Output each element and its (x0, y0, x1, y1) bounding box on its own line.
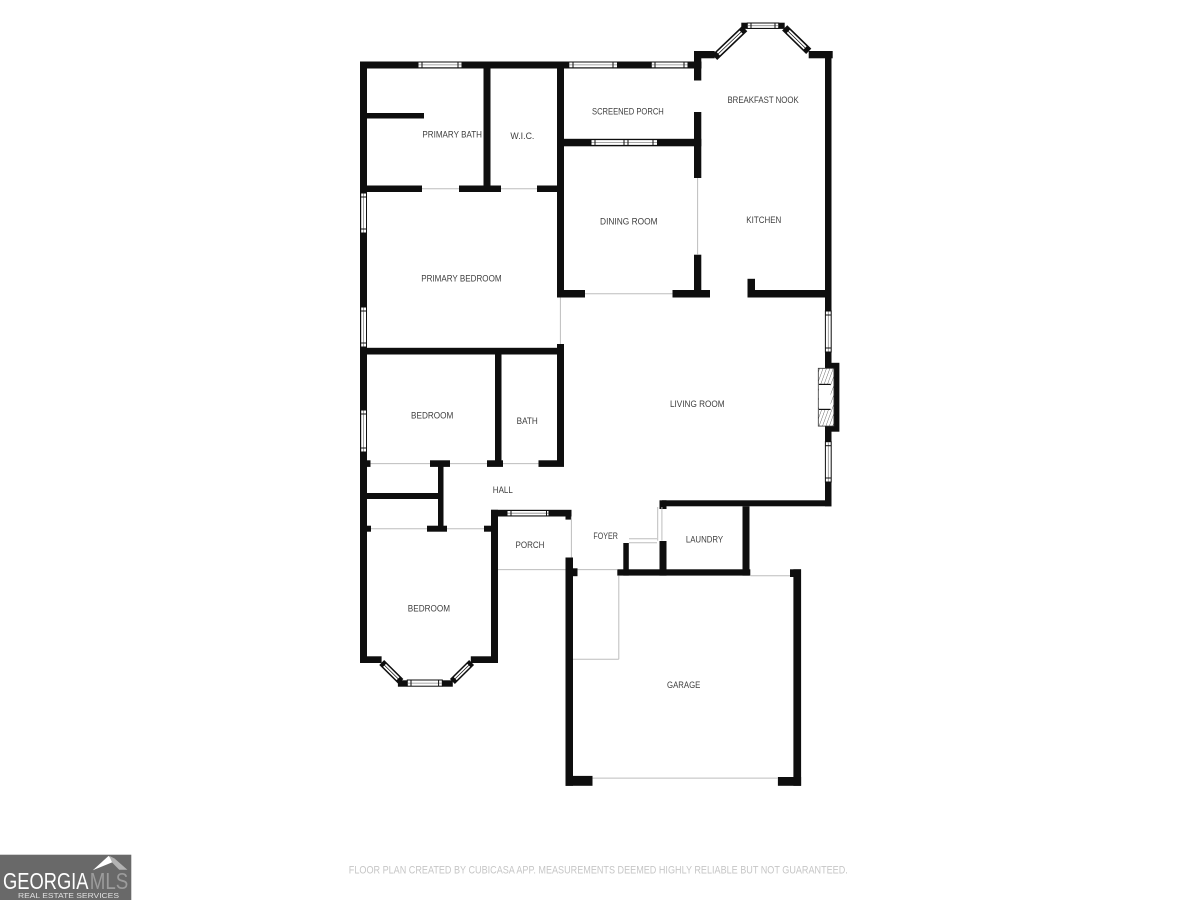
svg-text:FOYER: FOYER (593, 531, 618, 542)
svg-text:GARAGE: GARAGE (667, 680, 700, 691)
svg-text:HALL: HALL (493, 485, 514, 496)
svg-text:PRIMARY BEDROOM: PRIMARY BEDROOM (421, 273, 501, 284)
svg-text:MLS: MLS (90, 868, 129, 894)
svg-text:LAUNDRY: LAUNDRY (686, 534, 724, 545)
svg-text:LIVING ROOM: LIVING ROOM (670, 399, 725, 410)
svg-text:SCREENED PORCH: SCREENED PORCH (592, 106, 664, 117)
svg-text:PORCH: PORCH (516, 540, 545, 551)
svg-text:BEDROOM: BEDROOM (408, 603, 450, 614)
svg-text:FLOOR PLAN CREATED BY CUBICASA: FLOOR PLAN CREATED BY CUBICASA APP. MEAS… (349, 865, 848, 877)
svg-text:REAL ESTATE SERVICES: REAL ESTATE SERVICES (18, 893, 119, 900)
svg-text:GEORGIA: GEORGIA (3, 868, 89, 894)
svg-text:BREAKFAST NOOK: BREAKFAST NOOK (727, 95, 799, 106)
svg-text:KITCHEN: KITCHEN (746, 215, 781, 226)
svg-text:DINING ROOM: DINING ROOM (600, 216, 658, 227)
svg-text:BATH: BATH (517, 416, 538, 427)
svg-text:W.I.C.: W.I.C. (510, 131, 534, 142)
svg-text:BEDROOM: BEDROOM (411, 410, 453, 421)
svg-text:PRIMARY BATH: PRIMARY BATH (422, 129, 482, 140)
